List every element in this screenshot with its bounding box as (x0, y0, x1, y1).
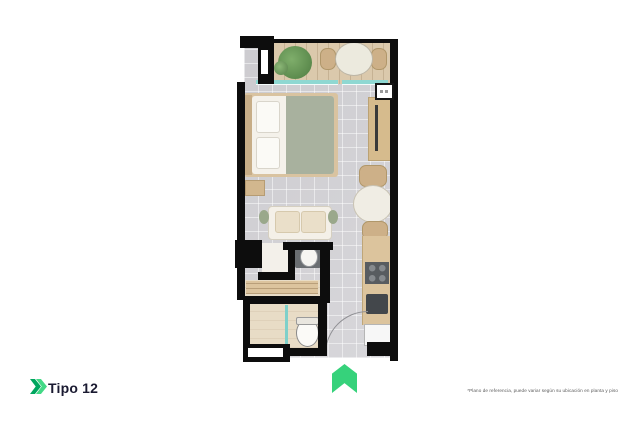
plant-small (259, 210, 269, 224)
desk-shelf-line (375, 105, 378, 151)
niche-dot (385, 90, 388, 93)
sofa-cushion (275, 211, 300, 233)
wall-segment (258, 272, 295, 280)
wall-segment (243, 296, 320, 304)
plant-small (328, 210, 338, 224)
wall-niche (248, 348, 283, 357)
ac-niche (375, 83, 394, 100)
outdoor-table (335, 42, 373, 76)
outdoor-chair (371, 48, 387, 70)
wall-segment (237, 82, 245, 240)
outdoor-chair (320, 48, 336, 70)
closet (246, 281, 318, 294)
wall-segment (273, 39, 398, 43)
wall-segment (320, 242, 330, 303)
stove (365, 262, 389, 284)
niche-dot (380, 90, 383, 93)
oven (366, 294, 388, 314)
desk (368, 97, 391, 161)
wall-segment (318, 302, 327, 348)
page: Tipo 12 *Plano de referencia, puede vari… (0, 0, 640, 427)
plant-leaf (274, 61, 288, 75)
sofa-cushion (301, 211, 326, 233)
orientation-arrow-icon (332, 364, 357, 393)
shower-glass (285, 305, 288, 345)
wall-segment (235, 240, 262, 268)
shower-floor (250, 303, 288, 348)
wall-segment (243, 300, 250, 347)
sofa (268, 206, 332, 240)
unit-type-label: Tipo 12 (48, 380, 98, 396)
brand-chevron-icon (30, 379, 48, 394)
pillow (256, 101, 280, 133)
bed-headboard (244, 95, 252, 175)
sink-basin (300, 247, 318, 267)
wall-segment (367, 342, 398, 356)
bed-blanket (286, 96, 334, 174)
floorplan (232, 33, 400, 363)
pillow (256, 137, 280, 169)
dining-table (353, 185, 393, 223)
wall-opening (261, 50, 268, 74)
disclaimer-text: *Plano de referencia, puede variar según… (467, 388, 618, 393)
nightstand (245, 180, 265, 196)
wall-segment (290, 348, 327, 356)
dining-chair (359, 165, 387, 187)
toilet-tank (296, 317, 319, 325)
